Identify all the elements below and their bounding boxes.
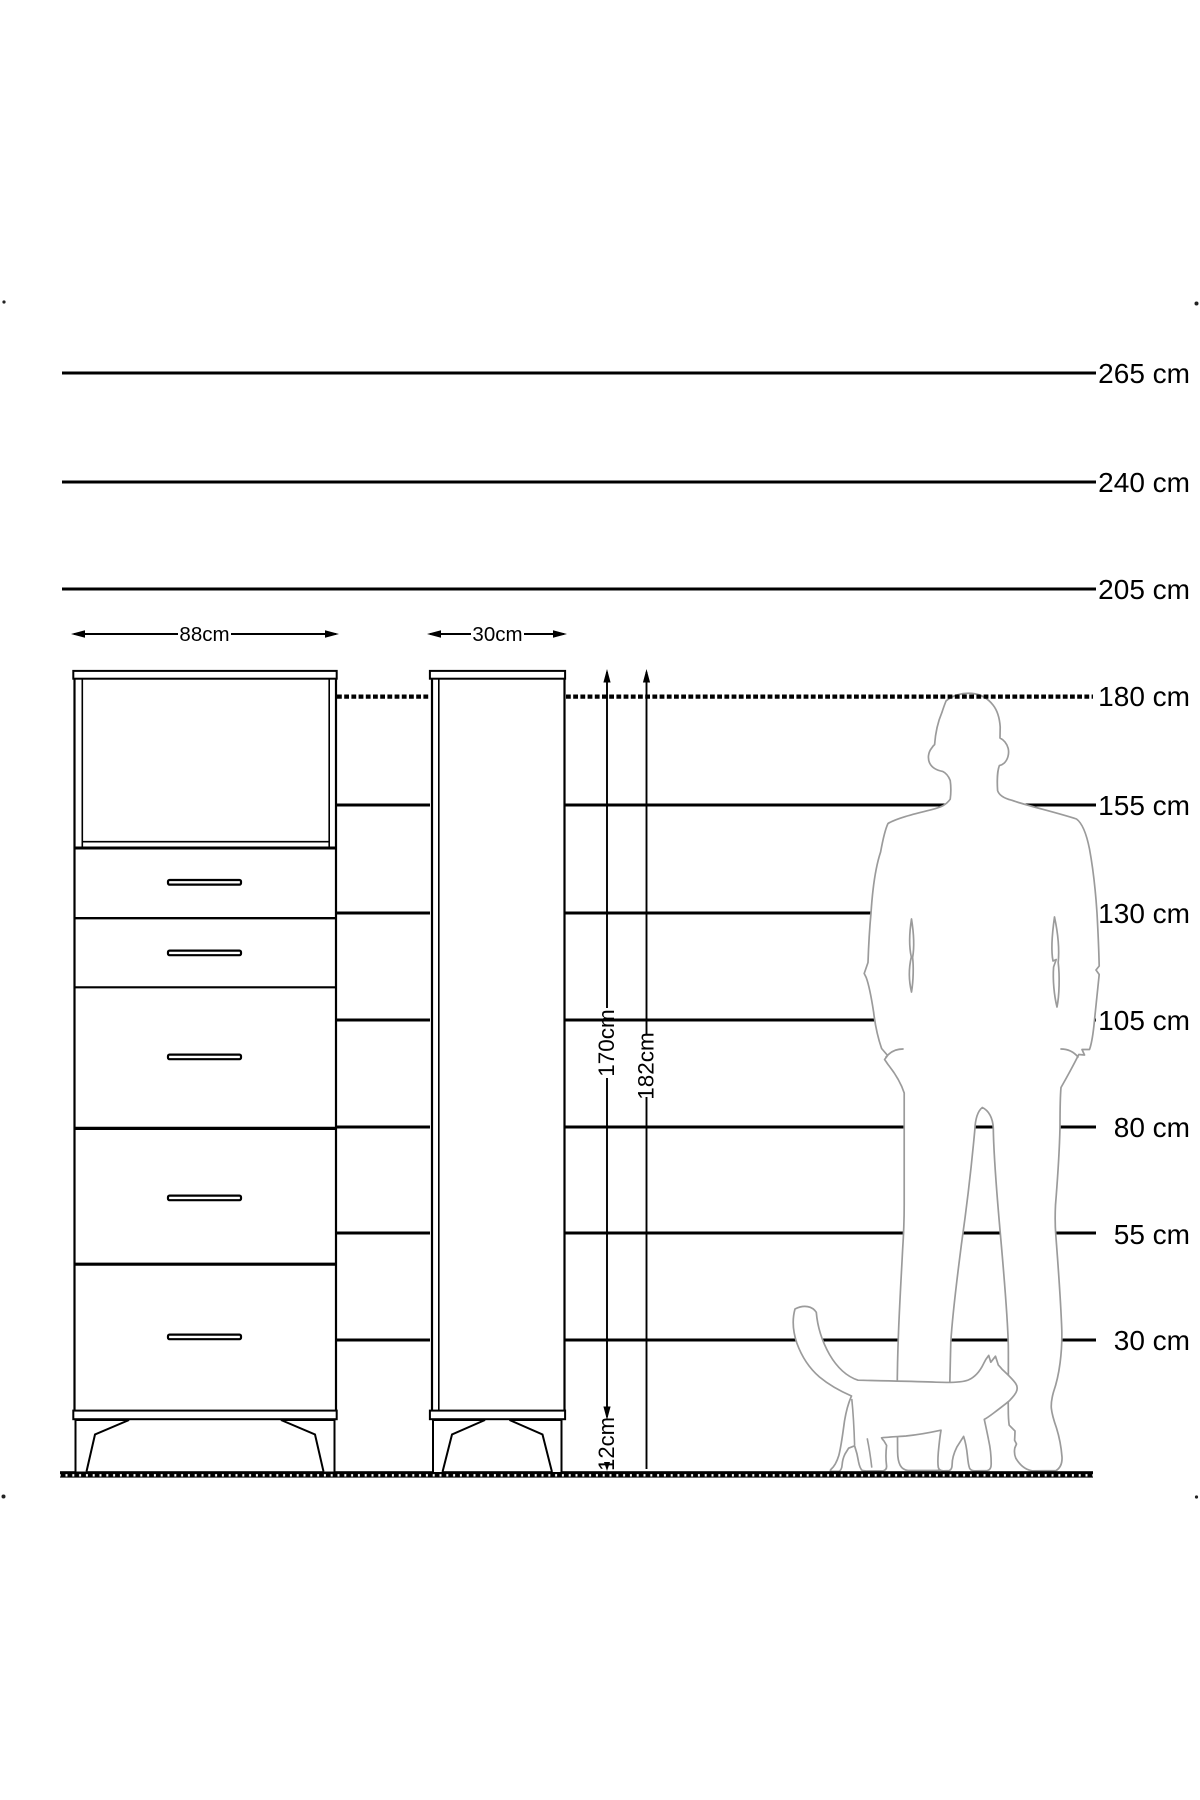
svg-text:170cm: 170cm <box>594 1009 619 1077</box>
svg-text:105 cm: 105 cm <box>1098 1005 1190 1036</box>
svg-text:182cm: 182cm <box>634 1032 659 1100</box>
svg-text:180 cm: 180 cm <box>1098 681 1190 712</box>
svg-text:130 cm: 130 cm <box>1098 898 1190 929</box>
svg-text:240 cm: 240 cm <box>1098 467 1190 498</box>
svg-text:88cm: 88cm <box>179 623 229 646</box>
svg-text:205 cm: 205 cm <box>1098 574 1190 605</box>
svg-text:30cm: 30cm <box>472 623 522 646</box>
svg-text:155 cm: 155 cm <box>1098 790 1190 821</box>
svg-text:55 cm: 55 cm <box>1114 1219 1190 1250</box>
svg-text:265 cm: 265 cm <box>1098 358 1190 389</box>
svg-text:80 cm: 80 cm <box>1114 1112 1190 1143</box>
svg-text:30 cm: 30 cm <box>1114 1325 1190 1356</box>
